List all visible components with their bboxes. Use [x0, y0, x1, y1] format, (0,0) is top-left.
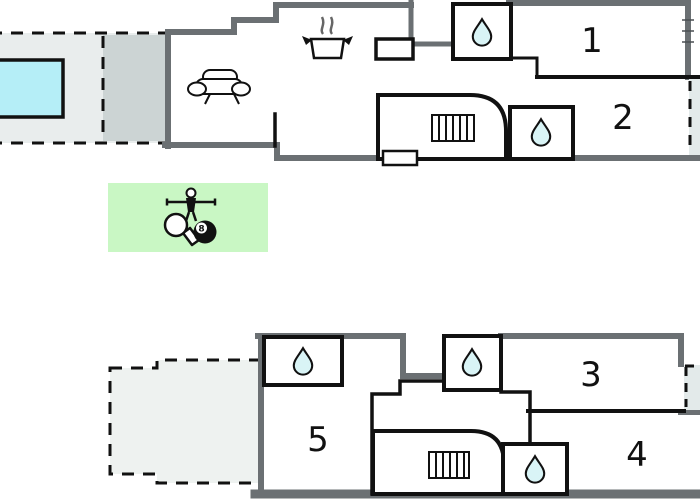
billiard-8-ball-icon: 8: [194, 221, 217, 244]
swimming-pool: [0, 60, 63, 117]
upper-stairs: [378, 95, 506, 159]
stairs-icon: [432, 115, 474, 141]
lower-balcony: [684, 365, 700, 410]
stairs-icon: [429, 452, 469, 478]
upper-bathroom-2: [510, 107, 573, 159]
kitchen-counter: [376, 39, 413, 59]
sofa-icon: [188, 70, 250, 104]
room-2-label: 2: [612, 98, 634, 138]
lower-bathroom-2: [444, 336, 501, 390]
lower-bathroom-1: [264, 337, 342, 385]
floor-plan-canvas: 1 2 8: [0, 0, 700, 500]
lower-stairs: [373, 431, 504, 494]
lower-bathroom-3: [503, 444, 567, 494]
door-marker: [383, 151, 417, 165]
cooking-pot-icon: [302, 17, 353, 58]
lower-terrace: [110, 360, 262, 483]
covered-patio-area: [103, 35, 167, 141]
billiard-ball-number: 8: [198, 225, 204, 235]
room-3-label: 3: [580, 355, 602, 395]
pool-terrace: [0, 33, 167, 143]
floor-plan-drawing: 1 2 8: [0, 0, 700, 500]
room-5-label: 5: [307, 420, 329, 460]
room-4-label: 4: [626, 435, 648, 475]
room-1-label: 1: [581, 21, 603, 61]
upper-balcony: [689, 79, 700, 155]
game-room: 8: [108, 183, 268, 252]
upper-bathroom-1: [453, 4, 511, 59]
